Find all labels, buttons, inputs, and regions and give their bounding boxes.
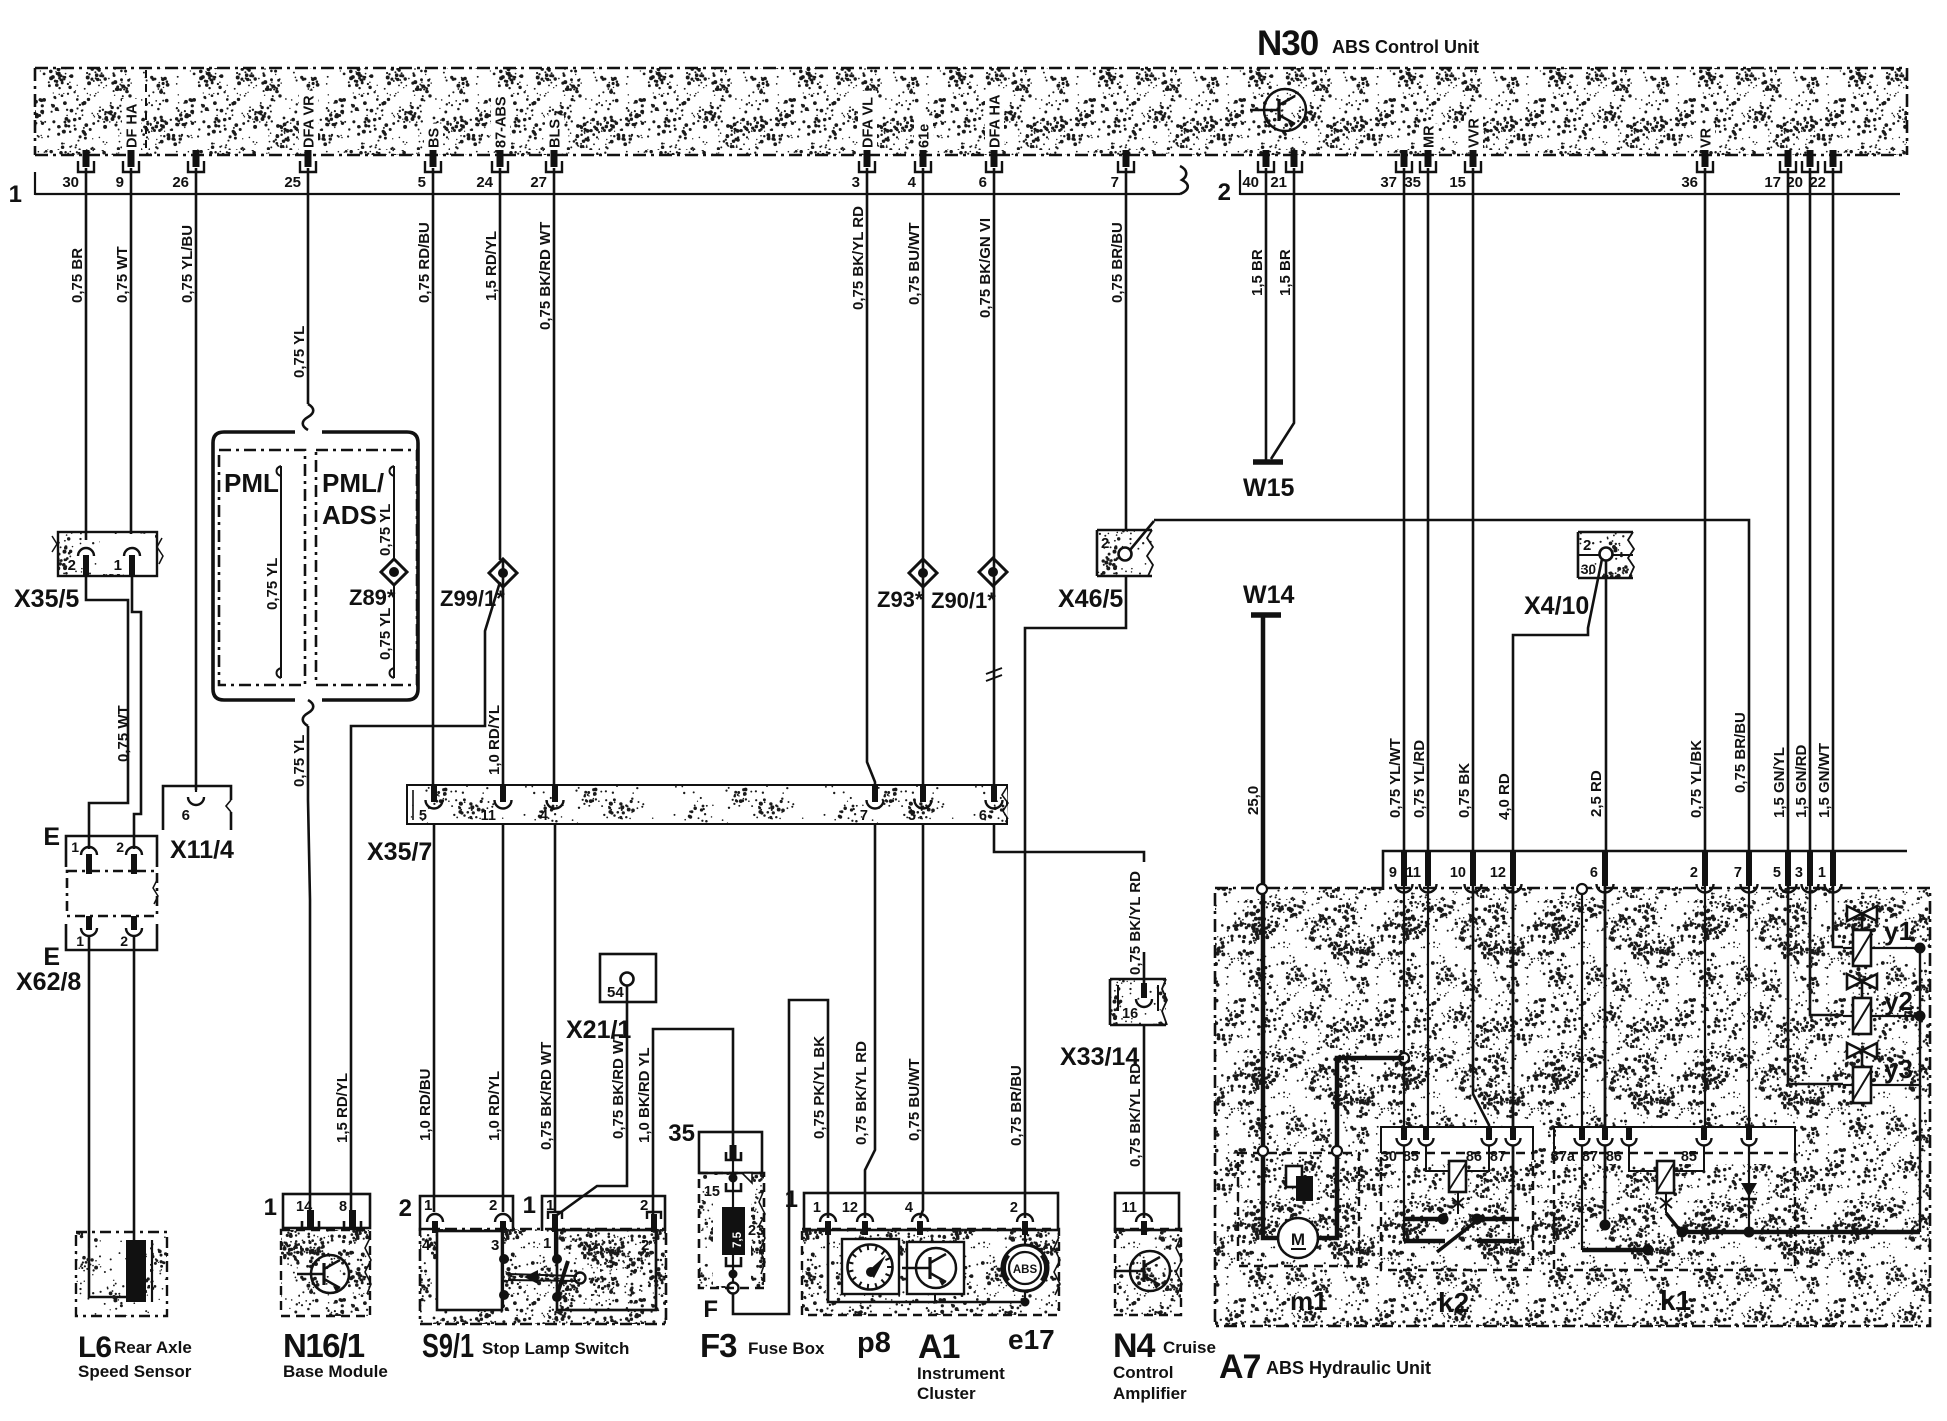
svg-text:6: 6 <box>182 807 190 824</box>
svg-text:DFA VL: DFA VL <box>861 97 877 148</box>
svg-text:ABS Control Unit: ABS Control Unit <box>1332 37 1479 57</box>
svg-text:3: 3 <box>1795 865 1803 881</box>
svg-text:0,75 BK/RD WT: 0,75 BK/RD WT <box>538 1042 555 1150</box>
svg-text:0,75 BU/WT: 0,75 BU/WT <box>906 1058 923 1141</box>
svg-text:0,75 BK/RD WT: 0,75 BK/RD WT <box>537 222 554 330</box>
svg-text:0,75 BR: 0,75 BR <box>69 248 86 303</box>
svg-text:87: 87 <box>1582 1149 1598 1165</box>
svg-text:2: 2 <box>489 1197 497 1214</box>
svg-text:y3: y3 <box>1884 1054 1913 1084</box>
svg-text:2: 2 <box>120 933 128 949</box>
svg-text:0,75 YL: 0,75 YL <box>291 326 308 378</box>
svg-text:14: 14 <box>296 1199 312 1215</box>
svg-text:Rear Axle: Rear Axle <box>114 1338 192 1357</box>
svg-text:0,75 YL/WT: 0,75 YL/WT <box>1387 738 1404 818</box>
svg-text:BLS: BLS <box>548 119 564 148</box>
svg-text:1,5 BR: 1,5 BR <box>1249 249 1266 296</box>
svg-text:1,0 RD/YL: 1,0 RD/YL <box>486 705 503 775</box>
svg-text:0,75 YL: 0,75 YL <box>377 608 394 660</box>
svg-text:Z90/1*: Z90/1* <box>931 588 996 613</box>
svg-text:85: 85 <box>1681 1149 1697 1165</box>
svg-text:1: 1 <box>543 1235 551 1252</box>
svg-text:7: 7 <box>1734 865 1742 881</box>
svg-text:1: 1 <box>1818 865 1826 881</box>
svg-text:40: 40 <box>1242 174 1259 191</box>
svg-text:0,75 BK/GN VI: 0,75 BK/GN VI <box>977 218 994 318</box>
svg-text:0,75 RD/BU: 0,75 RD/BU <box>416 222 433 303</box>
svg-text:BS: BS <box>427 128 443 148</box>
svg-text:2: 2 <box>1690 865 1698 881</box>
svg-text:X35/7: X35/7 <box>367 838 432 866</box>
svg-text:W15: W15 <box>1243 474 1295 502</box>
svg-text:MR: MR <box>1422 125 1438 148</box>
svg-text:Z93*: Z93* <box>877 587 924 612</box>
svg-text:A7: A7 <box>1219 1348 1261 1386</box>
svg-text:30: 30 <box>1581 562 1596 577</box>
svg-text:11: 11 <box>1406 865 1421 881</box>
svg-text:1,0 BK/RD YL: 1,0 BK/RD YL <box>636 1047 653 1143</box>
svg-text:ABS: ABS <box>1013 1264 1038 1276</box>
svg-text:30: 30 <box>1381 1149 1397 1165</box>
svg-text:4: 4 <box>422 1237 431 1254</box>
svg-text:N16/1: N16/1 <box>283 1327 365 1364</box>
svg-text:Amplifier: Amplifier <box>1113 1384 1187 1403</box>
svg-text:Cluster: Cluster <box>917 1384 976 1403</box>
svg-text:2: 2 <box>1010 1200 1018 1216</box>
svg-text:36: 36 <box>1681 174 1698 191</box>
svg-text:0,75 BK/YL RD: 0,75 BK/YL RD <box>1127 871 1144 975</box>
svg-text:23: 23 <box>748 1223 764 1239</box>
svg-text:F: F <box>703 1296 718 1323</box>
svg-text:1: 1 <box>546 1197 554 1214</box>
svg-text:Control: Control <box>1113 1363 1173 1382</box>
svg-text:0,75 PK/YL BK: 0,75 PK/YL BK <box>811 1036 828 1139</box>
svg-text:0,75 BR/BU: 0,75 BR/BU <box>1008 1065 1025 1146</box>
svg-text:37: 37 <box>1380 174 1397 191</box>
svg-text:DF HA: DF HA <box>125 103 141 148</box>
svg-text:E: E <box>43 943 60 971</box>
svg-text:6: 6 <box>979 174 987 191</box>
svg-text:2: 2 <box>641 1237 649 1254</box>
svg-text:VR: VR <box>1699 127 1715 148</box>
svg-text:15: 15 <box>704 1184 720 1200</box>
svg-text:15: 15 <box>1449 174 1466 191</box>
svg-text:2: 2 <box>640 1197 648 1214</box>
svg-text:ADS: ADS <box>322 500 377 530</box>
svg-text:0,75 WT: 0,75 WT <box>115 705 132 762</box>
svg-text:3: 3 <box>852 174 860 191</box>
svg-text:10: 10 <box>1450 865 1466 881</box>
svg-text:4: 4 <box>905 1200 913 1216</box>
svg-text:L6: L6 <box>78 1331 111 1364</box>
svg-text:1: 1 <box>114 557 122 574</box>
svg-text:Base Module: Base Module <box>283 1362 388 1381</box>
svg-text:0,75 BR/BU: 0,75 BR/BU <box>1109 222 1126 303</box>
svg-text:1: 1 <box>264 1194 277 1221</box>
svg-text:DFA HA: DFA HA <box>988 94 1004 148</box>
svg-text:35: 35 <box>668 1120 695 1147</box>
svg-text:0,75 BK: 0,75 BK <box>1456 763 1473 818</box>
svg-text:Fuse Box: Fuse Box <box>748 1339 825 1358</box>
svg-text:61e: 61e <box>917 124 933 148</box>
svg-text:54: 54 <box>607 984 624 1001</box>
svg-text:1,5 RD/YL: 1,5 RD/YL <box>334 1073 351 1143</box>
svg-text:1: 1 <box>523 1192 536 1219</box>
svg-text:5: 5 <box>418 174 426 191</box>
svg-text:30: 30 <box>62 174 79 191</box>
svg-text:1,5 RD/YL: 1,5 RD/YL <box>483 231 500 301</box>
svg-text:F3: F3 <box>700 1327 737 1364</box>
svg-text:85: 85 <box>1403 1149 1419 1165</box>
svg-text:y1: y1 <box>1884 916 1913 946</box>
svg-text:11: 11 <box>1122 1200 1137 1216</box>
svg-text:0,75 BR/BU: 0,75 BR/BU <box>1732 712 1749 793</box>
svg-text:7: 7 <box>860 808 868 824</box>
svg-text:e17: e17 <box>1008 1324 1055 1355</box>
svg-text:1,5 GN/YL: 1,5 GN/YL <box>1771 747 1788 818</box>
svg-text:k1: k1 <box>1660 1285 1691 1316</box>
svg-text:26: 26 <box>172 174 189 191</box>
svg-text:9: 9 <box>116 174 124 191</box>
svg-text:DFA VR: DFA VR <box>302 95 318 148</box>
svg-text:Speed Sensor: Speed Sensor <box>78 1362 192 1381</box>
svg-text:X11/4: X11/4 <box>170 836 234 864</box>
svg-text:X35/5: X35/5 <box>14 585 79 613</box>
svg-text:35: 35 <box>1404 174 1421 191</box>
svg-text:2: 2 <box>1218 179 1231 206</box>
svg-text:Stop Lamp Switch: Stop Lamp Switch <box>482 1339 629 1358</box>
svg-text:0,75 BU/WT: 0,75 BU/WT <box>906 222 923 305</box>
svg-text:PML/: PML/ <box>322 468 384 498</box>
svg-text:5: 5 <box>1773 865 1781 881</box>
svg-text:86: 86 <box>1466 1149 1482 1165</box>
svg-text:1: 1 <box>71 839 79 855</box>
svg-text:VVR: VVR <box>1467 118 1483 148</box>
svg-text:11: 11 <box>481 808 496 824</box>
svg-text:y2: y2 <box>1884 986 1913 1016</box>
svg-text:0,75 YL/BK: 0,75 YL/BK <box>1688 740 1705 818</box>
svg-text:0,75 YL: 0,75 YL <box>377 504 394 556</box>
svg-text:X46/5: X46/5 <box>1058 585 1123 613</box>
svg-text:4: 4 <box>908 174 917 191</box>
svg-text:17: 17 <box>1764 174 1781 191</box>
svg-text:6: 6 <box>979 808 987 824</box>
svg-text:k2: k2 <box>1438 1287 1469 1318</box>
svg-text:12: 12 <box>1490 865 1506 881</box>
svg-text:2,5 RD: 2,5 RD <box>1588 770 1605 817</box>
svg-text:Z89*: Z89* <box>349 585 396 610</box>
svg-text:1,5 GN/RD: 1,5 GN/RD <box>1793 744 1810 818</box>
svg-text:m1: m1 <box>1290 1286 1328 1316</box>
svg-text:3: 3 <box>908 808 916 824</box>
svg-text:0,75 WT: 0,75 WT <box>114 246 131 303</box>
svg-text:W14: W14 <box>1243 581 1295 609</box>
svg-text:0,75 BK/RD WT: 0,75 BK/RD WT <box>610 1031 627 1139</box>
svg-text:0,75 BK/YL RD: 0,75 BK/YL RD <box>1127 1063 1144 1167</box>
svg-text:87: 87 <box>1490 1149 1506 1165</box>
svg-text:21: 21 <box>1270 174 1287 191</box>
svg-text:Instrument: Instrument <box>917 1364 1005 1383</box>
svg-text:8: 8 <box>339 1199 347 1215</box>
svg-text:1: 1 <box>785 1186 798 1213</box>
svg-text:1,5 GN/WT: 1,5 GN/WT <box>1816 743 1833 818</box>
svg-text:7: 7 <box>1111 174 1119 191</box>
svg-text:4: 4 <box>540 808 548 824</box>
svg-text:0,75 YL/BU: 0,75 YL/BU <box>179 225 196 303</box>
svg-text:2: 2 <box>116 839 124 855</box>
svg-text:22: 22 <box>1809 174 1826 191</box>
svg-text:27: 27 <box>530 174 547 191</box>
svg-text:24: 24 <box>476 174 493 191</box>
svg-text:2: 2 <box>68 557 76 574</box>
svg-text:N4: N4 <box>1113 1327 1156 1365</box>
svg-text:S9/1: S9/1 <box>422 1327 474 1364</box>
svg-text:M: M <box>1291 1230 1305 1249</box>
svg-text:1,0 RD/YL: 1,0 RD/YL <box>486 1071 503 1141</box>
svg-text:p8: p8 <box>857 1327 891 1359</box>
svg-text:0,75 BK/YL RD: 0,75 BK/YL RD <box>850 206 867 310</box>
svg-text:2: 2 <box>399 1195 412 1222</box>
svg-text:Cruise: Cruise <box>1163 1338 1216 1357</box>
svg-text:0,75 YL: 0,75 YL <box>291 735 308 787</box>
svg-text:3: 3 <box>491 1237 499 1254</box>
svg-text:1,5 BR: 1,5 BR <box>1277 249 1294 296</box>
svg-text:86: 86 <box>1606 1149 1622 1165</box>
svg-text:25,0: 25,0 <box>1245 786 1262 815</box>
svg-text:6: 6 <box>1590 865 1598 881</box>
svg-text:87-ABS: 87-ABS <box>494 96 510 148</box>
svg-text:1: 1 <box>9 181 22 208</box>
svg-text:PML: PML <box>224 468 279 498</box>
svg-text:1,0 RD/BU: 1,0 RD/BU <box>417 1068 434 1141</box>
svg-text:12: 12 <box>842 1200 858 1216</box>
svg-text:4,0 RD: 4,0 RD <box>1496 773 1513 820</box>
svg-text:1: 1 <box>813 1200 821 1216</box>
svg-text:A1: A1 <box>918 1328 960 1366</box>
svg-text:25: 25 <box>284 174 301 191</box>
svg-text:E: E <box>43 823 60 851</box>
svg-text:2: 2 <box>1101 535 1109 552</box>
svg-text:0,75 YL: 0,75 YL <box>264 558 281 610</box>
svg-text:9: 9 <box>1389 865 1397 881</box>
svg-text:1: 1 <box>76 933 84 949</box>
svg-text:0,75 YL/RD: 0,75 YL/RD <box>1411 740 1428 818</box>
svg-text:0,75 BK/YL RD: 0,75 BK/YL RD <box>853 1041 870 1145</box>
svg-text:16: 16 <box>1122 1006 1138 1022</box>
svg-text:X4/10: X4/10 <box>1524 592 1589 620</box>
svg-text:ABS Hydraulic Unit: ABS Hydraulic Unit <box>1266 1358 1431 1378</box>
svg-text:X62/8: X62/8 <box>16 968 81 996</box>
svg-text:2: 2 <box>1583 537 1591 554</box>
svg-text:N30: N30 <box>1257 24 1319 63</box>
svg-text:7,5: 7,5 <box>732 1231 744 1248</box>
svg-text:1: 1 <box>424 1197 432 1214</box>
svg-text:5: 5 <box>419 808 427 824</box>
